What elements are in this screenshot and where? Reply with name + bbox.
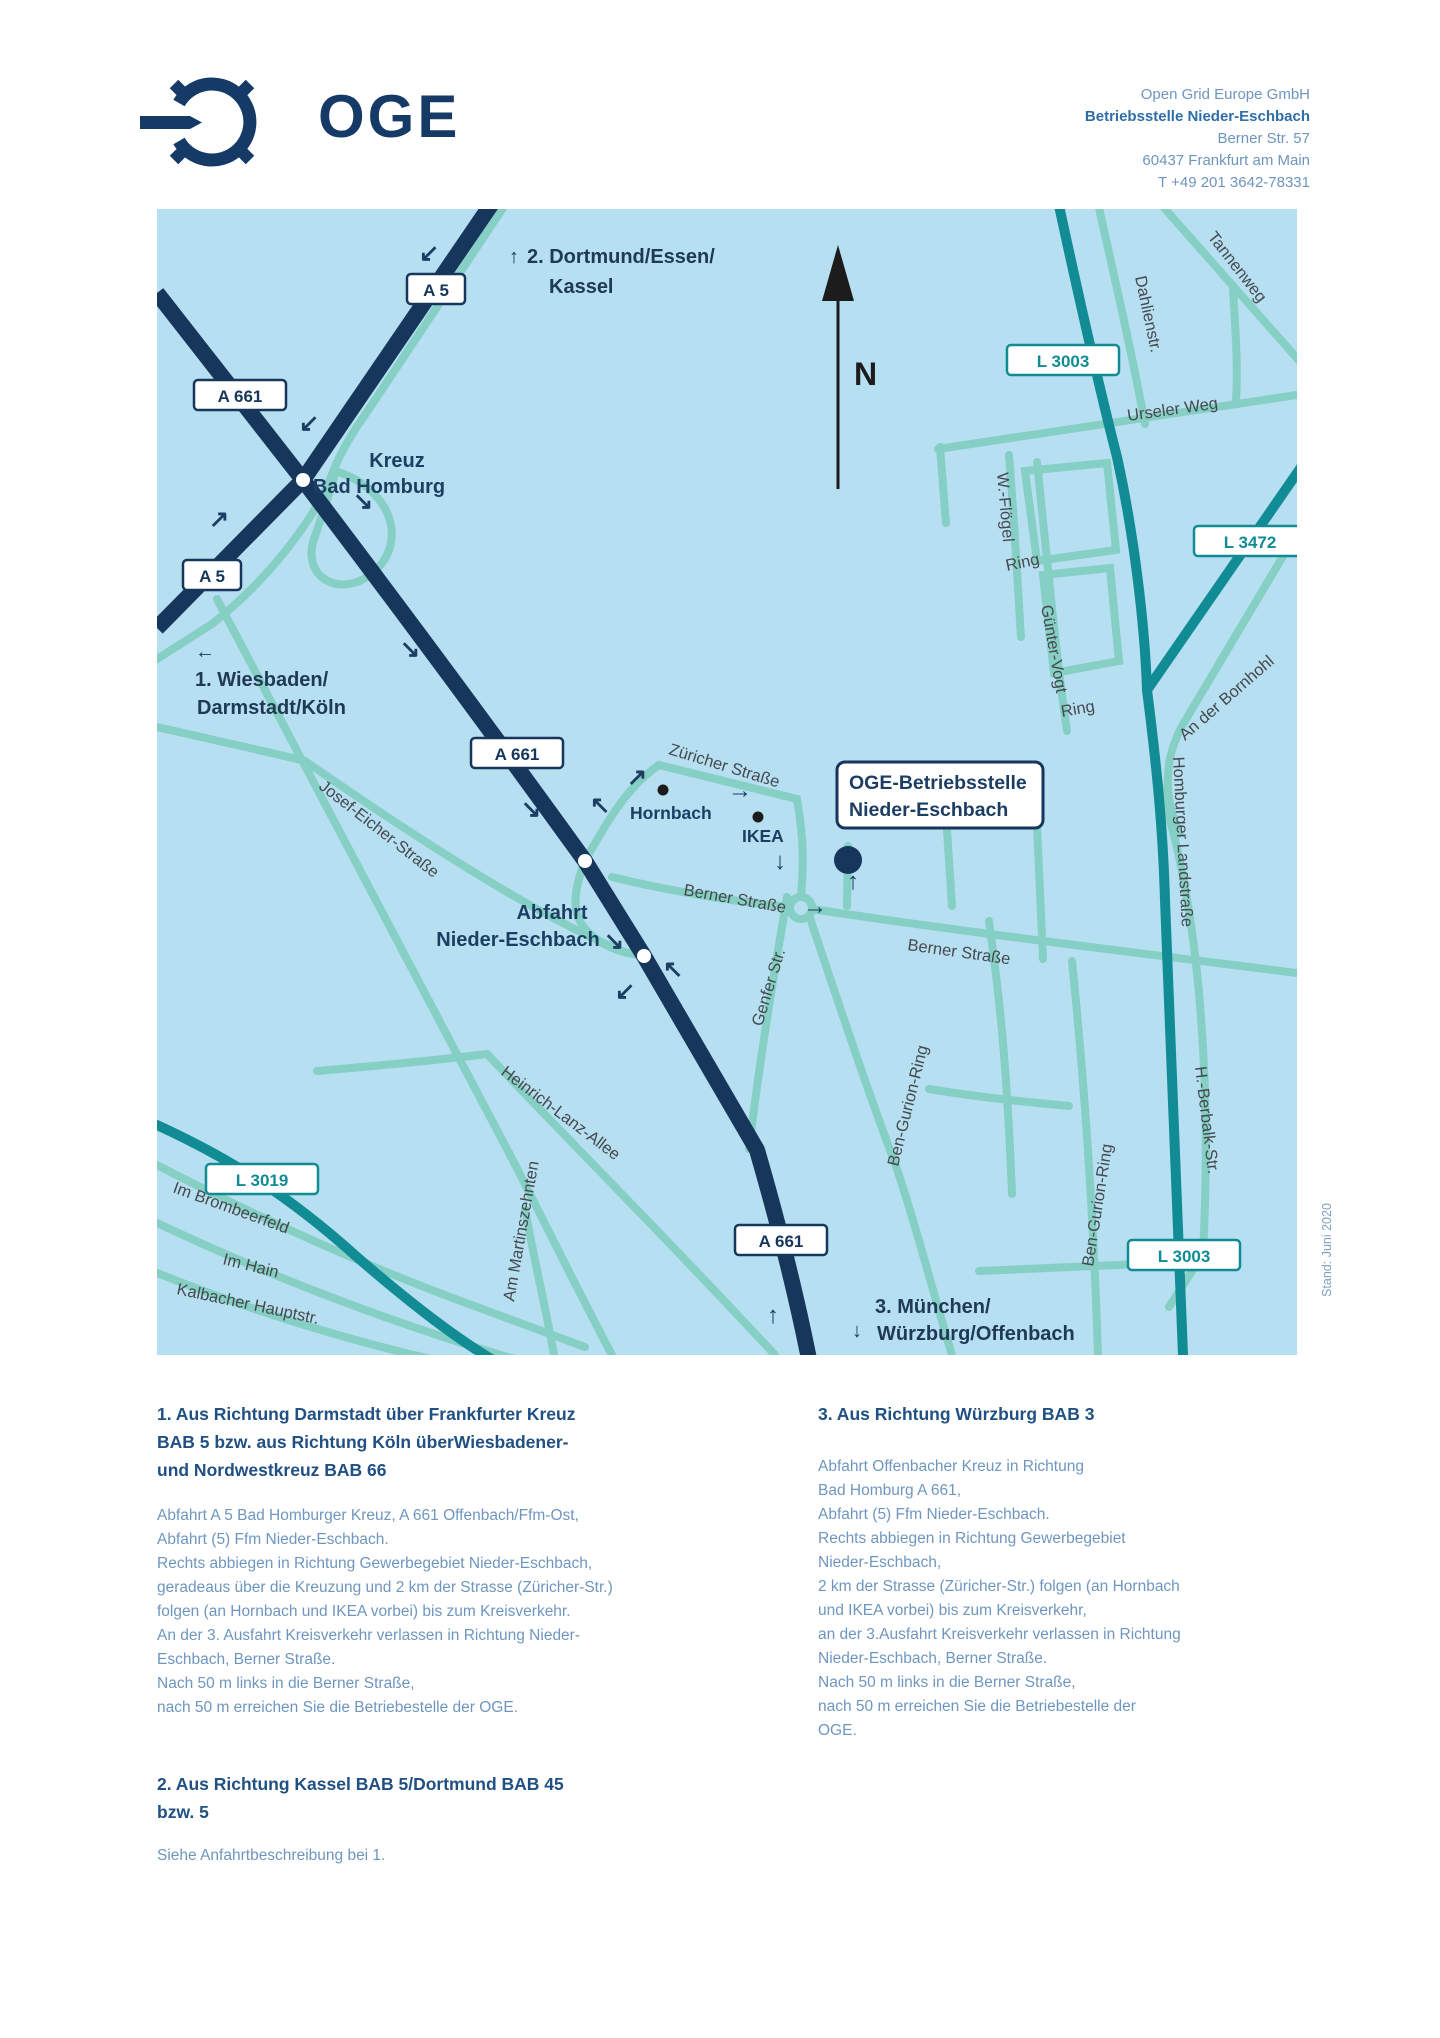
label-ikea: IKEA: [742, 826, 784, 846]
label-abfahrt: Abfahrt: [516, 902, 587, 924]
logo-wordmark: OGE: [318, 82, 460, 151]
section2-heading: 2. Aus Richtung Kassel BAB 5/Dortmund BA…: [157, 1770, 722, 1826]
svg-text:L 3472: L 3472: [1224, 533, 1277, 552]
label-darmstadt-koeln: Darmstadt/Köln: [197, 697, 346, 719]
badge-a661-bottom: A 661: [735, 1225, 827, 1255]
arrow-a661-north1-icon: ↖: [663, 956, 683, 983]
oge-logo: OGE: [140, 64, 440, 182]
svg-text:L 3003: L 3003: [1158, 1247, 1211, 1266]
badge-a5-top: A 5: [407, 274, 465, 304]
arrow-hornbach-icon: ↖: [590, 792, 610, 819]
exit-dot-1: [578, 854, 592, 868]
arrow-a661-mid-icon: ↘: [400, 636, 420, 663]
label-kreuz: Kreuz: [369, 450, 425, 472]
oge-location-dot: [834, 846, 862, 874]
svg-text:A 5: A 5: [423, 281, 449, 300]
section1-body: Abfahrt A 5 Bad Homburger Kreuz, A 661 O…: [157, 1504, 722, 1720]
label-muenchen: 3. München/: [875, 1296, 991, 1318]
svg-text:L 3003: L 3003: [1037, 352, 1090, 371]
label-abfahrt-nieder-eschbach: Nieder-Eschbach: [436, 929, 599, 951]
hornbach-dot: [658, 785, 669, 796]
arrow-up-icon: ↑: [509, 246, 519, 268]
map: N Züricher Straße Berner Straße Berner S…: [157, 209, 1297, 1355]
callout-line1: OGE-Betriebsstelle: [849, 772, 1027, 794]
anfahrt-page: OGE Open Grid Europe GmbH Betriebsstelle…: [0, 0, 1440, 2038]
section3-body: Abfahrt Offenbacher Kreuz in Richtung Ba…: [818, 1455, 1293, 1743]
svg-text:A 661: A 661: [495, 745, 540, 764]
badge-l3019: L 3019: [206, 1164, 318, 1194]
kreuz-dot: [296, 473, 310, 487]
address-company: Open Grid Europe GmbH: [1085, 84, 1310, 106]
svg-text:A 5: A 5: [199, 567, 225, 586]
label-wiesbaden: 1. Wiesbaden/: [195, 669, 329, 691]
label-dortmund-essen: 2. Dortmund/Essen/: [527, 246, 715, 268]
arrow-a661-upper-icon: ↙: [299, 410, 319, 437]
directions-column-right: 3. Aus Richtung Würzburg BAB 3 Abfahrt O…: [818, 1400, 1293, 1743]
svg-text:A 661: A 661: [759, 1232, 804, 1251]
address-city: 60437 Frankfurt am Main: [1085, 150, 1310, 172]
badge-a661-mid: A 661: [471, 738, 563, 768]
address-site: Betriebsstelle Nieder-Eschbach: [1085, 106, 1310, 128]
badge-l3472: L 3472: [1194, 526, 1297, 556]
section2-body: Siehe Anfahrtbeschreibung bei 1.: [157, 1844, 722, 1868]
arrow-a661-south1-icon: ↘: [604, 928, 624, 955]
directions-column-left: 1. Aus Richtung Darmstadt über Frankfurt…: [157, 1400, 722, 1868]
ikea-dot: [753, 812, 764, 823]
north-label: N: [854, 356, 877, 392]
svg-text:A 661: A 661: [218, 387, 263, 406]
arrow-zuericher-up-icon: ↗: [627, 764, 647, 791]
arrow-a661-south2-icon: ↙: [615, 978, 635, 1005]
map-canvas: N Züricher Straße Berner Straße Berner S…: [157, 209, 1297, 1355]
callout-line2: Nieder-Eschbach: [849, 799, 1008, 821]
arrow-a5-lower-icon: ↗: [209, 506, 229, 533]
address-street: Berner Str. 57: [1085, 128, 1310, 150]
badge-a661-left: A 661: [194, 380, 286, 410]
badge-l3003-top: L 3003: [1007, 345, 1119, 375]
badge-a5-left: A 5: [183, 560, 241, 590]
section1-heading: 1. Aus Richtung Darmstadt über Frankfurt…: [157, 1400, 722, 1484]
arrow-zuericher-right-icon: →: [728, 777, 752, 804]
address-phone: T +49 201 3642-78331: [1085, 172, 1310, 194]
label-wuerzburg-offenbach: Würzburg/Offenbach: [877, 1323, 1075, 1345]
arrow-a661-bottom-icon: ↑: [767, 1302, 779, 1329]
label-bad-homburg: Bad Homburg: [313, 476, 445, 498]
arrow-left-icon: ←: [195, 641, 215, 663]
arrow-exit-icon: ↘: [521, 796, 541, 823]
stand-note: Stand: Juni 2020: [1320, 1160, 1334, 1340]
arrow-berner-icon: →: [803, 893, 827, 920]
label-kassel: Kassel: [549, 276, 614, 298]
arrow-roundabout-icon: ↓: [774, 848, 786, 875]
address-block: Open Grid Europe GmbH Betriebsstelle Nie…: [1085, 84, 1310, 194]
arrow-a5-top-icon: ↙: [419, 240, 439, 267]
arrow-down-icon: ↓: [852, 1320, 862, 1342]
badge-l3003-bottom: L 3003: [1128, 1240, 1240, 1270]
section3-heading: 3. Aus Richtung Würzburg BAB 3: [818, 1400, 1293, 1428]
svg-text:L 3019: L 3019: [236, 1171, 289, 1190]
label-hornbach: Hornbach: [630, 803, 712, 823]
exit-dot-2: [637, 949, 651, 963]
